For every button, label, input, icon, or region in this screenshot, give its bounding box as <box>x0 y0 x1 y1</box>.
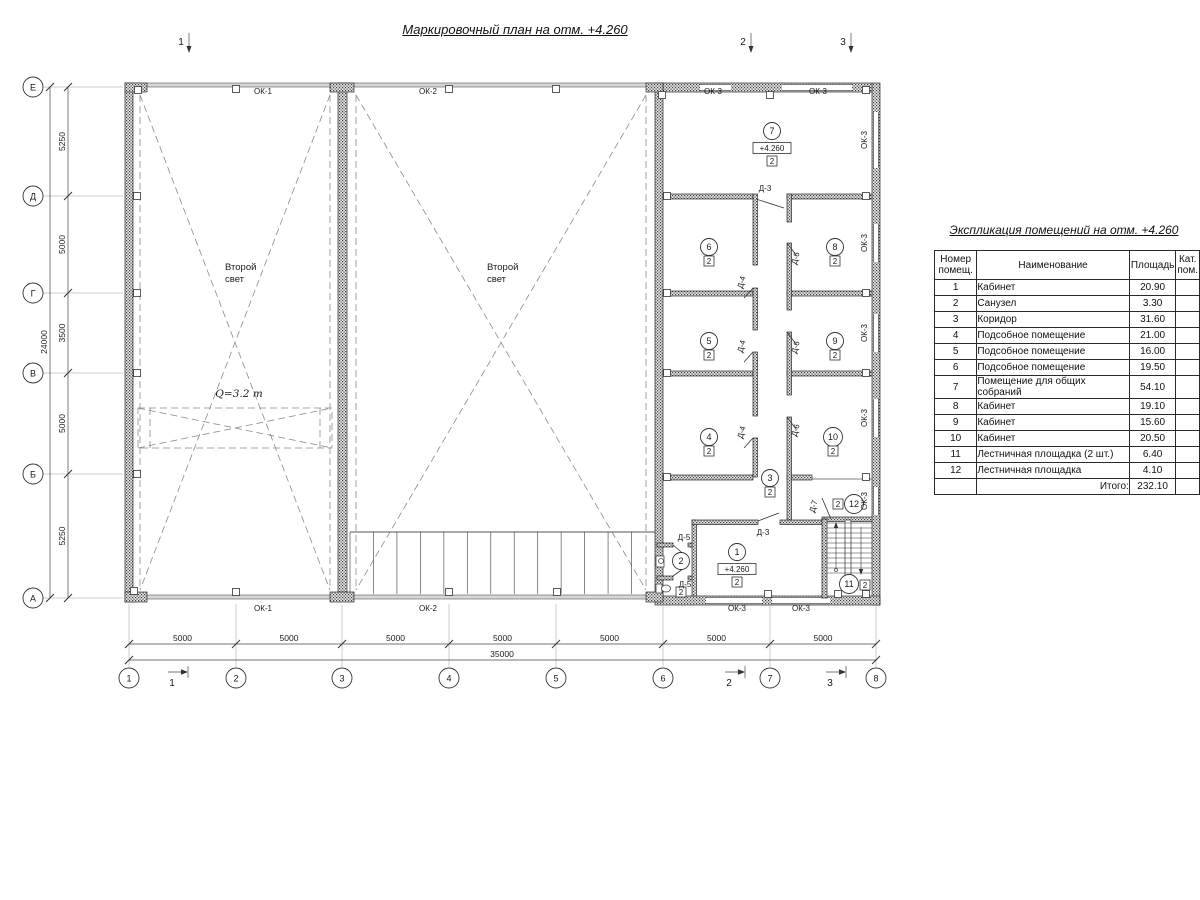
window-label: ОК-3 <box>860 491 869 510</box>
door-label: Д-3 <box>759 184 772 193</box>
section-mark-label: 3 <box>840 37 846 48</box>
cell-room-category <box>1176 328 1200 344</box>
column-marker <box>765 591 772 598</box>
cell-total-value: 232.10 <box>1129 479 1176 495</box>
cell-room-name: Лестничная площадка <box>977 463 1129 479</box>
column-marker <box>233 589 240 596</box>
window-label: ОК-3 <box>860 408 869 427</box>
axis-label: Д <box>30 192 36 202</box>
axis-label: Е <box>30 83 36 93</box>
table-row: 11Лестничная площадка (2 шт.)6.40 <box>935 447 1200 463</box>
room-number: 5 <box>706 336 711 346</box>
cell-room-category <box>1176 376 1200 399</box>
axis-label: 2 <box>233 674 238 684</box>
dimension-total: 24000 <box>39 330 49 354</box>
table-row: 6Подсобное помещение19.50 <box>935 360 1200 376</box>
cell-room-number: 11 <box>935 447 977 463</box>
dimension: 5000 <box>814 633 833 643</box>
col-header-name: Наименование <box>977 251 1129 280</box>
bracing-and-crane <box>138 95 655 594</box>
column-marker <box>446 86 453 93</box>
room-number: 4 <box>706 432 711 442</box>
section-arrow-icon <box>749 46 754 53</box>
column-marker <box>131 588 138 595</box>
cell-room-number: 3 <box>935 312 977 328</box>
table-row: 9Кабинет15.60 <box>935 415 1200 431</box>
cell-room-area: 15.60 <box>1129 415 1176 431</box>
room-number: 8 <box>832 242 837 252</box>
category-label: 2 <box>768 488 773 497</box>
column-marker <box>863 290 870 297</box>
column-marker <box>134 193 141 200</box>
cell-room-name: Подсобное помещение <box>977 328 1129 344</box>
axis-label: 3 <box>339 674 344 684</box>
dimension-total: 35000 <box>490 649 514 659</box>
room-number: 10 <box>828 432 838 442</box>
cell-room-category <box>1176 296 1200 312</box>
cell-room-area: 21.00 <box>1129 328 1176 344</box>
cell-room-number: 9 <box>935 415 977 431</box>
window-label: ОК-3 <box>860 323 869 342</box>
cell-room-category <box>1176 447 1200 463</box>
crane-capacity-label: Q=3.2 т <box>215 388 262 400</box>
cell-room-category <box>1176 280 1200 296</box>
door-label: Д-7 <box>808 499 820 514</box>
cell-room-area: 3.30 <box>1129 296 1176 312</box>
column-marker <box>863 193 870 200</box>
column-marker <box>664 474 671 481</box>
category-label: 2 <box>735 578 740 587</box>
room-number: 7 <box>769 126 774 136</box>
category-label: 2 <box>833 257 838 266</box>
category-label: 2 <box>833 351 838 360</box>
column-marker <box>553 86 560 93</box>
axis-label: 5 <box>553 674 558 684</box>
category-label: 2 <box>836 500 841 509</box>
section-mark-label: 2 <box>740 37 746 48</box>
axis-label: Б <box>30 470 36 480</box>
axis-label: 8 <box>873 674 878 684</box>
dimension: 5000 <box>707 633 726 643</box>
room-number: 11 <box>844 579 853 589</box>
axis-label: В <box>30 369 36 379</box>
elevation-label: +4.260 <box>725 565 750 574</box>
cell-room-name: Кабинет <box>977 280 1129 296</box>
door-label: Д-6 <box>790 423 802 438</box>
table-row: 3Коридор31.60 <box>935 312 1200 328</box>
axis-label: 7 <box>767 674 772 684</box>
door-label: Д-3 <box>757 528 770 537</box>
cell-room-category <box>1176 344 1200 360</box>
cell-room-number: 8 <box>935 399 977 415</box>
second-light-label: свет <box>487 274 507 285</box>
col-header-cat: Кат. пом. <box>1176 251 1200 280</box>
cell-room-name: Кабинет <box>977 431 1129 447</box>
cell-room-number: 4 <box>935 328 977 344</box>
column-marker <box>863 87 870 94</box>
cell-room-category <box>1176 312 1200 328</box>
window-label: ОК-3 <box>728 604 747 613</box>
window-label: ОК-1 <box>254 87 273 96</box>
table-row: 8Кабинет19.10 <box>935 399 1200 415</box>
category-label: 2 <box>707 351 712 360</box>
axis-label: А <box>30 594 36 604</box>
section-arrow-icon <box>187 46 192 53</box>
cell-room-number: 1 <box>935 280 977 296</box>
table-row: 4Подсобное помещение21.00 <box>935 328 1200 344</box>
cell-room-number: 2 <box>935 296 977 312</box>
column-marker <box>659 92 666 99</box>
cell-room-category <box>1176 431 1200 447</box>
column-marker <box>767 92 774 99</box>
window-label: ОК-3 <box>860 130 869 149</box>
table-row: 5Подсобное помещение16.00 <box>935 344 1200 360</box>
cell-room-name: Кабинет <box>977 415 1129 431</box>
room-number: 9 <box>832 336 837 346</box>
dimension: 3500 <box>57 323 67 342</box>
section-arrow-icon <box>849 46 854 53</box>
cell-room-number: 6 <box>935 360 977 376</box>
cell-total-label: Итого: <box>977 479 1129 495</box>
table-row: 2Санузел3.30 <box>935 296 1200 312</box>
category-label: 2 <box>770 157 775 166</box>
door-label: Д-4 <box>736 425 748 440</box>
cell-room-area: 20.90 <box>1129 280 1176 296</box>
dimension: 5000 <box>57 235 67 254</box>
category-label: 2 <box>679 588 684 597</box>
door-label: Д-5 <box>678 533 691 542</box>
dimension: 5000 <box>173 633 192 643</box>
window-label: ОК-3 <box>792 604 811 613</box>
col-header-num: Номер помещ. <box>935 251 977 280</box>
column-marker <box>446 589 453 596</box>
explication-table: Номер помещ. Наименование Площадь Кат. п… <box>934 250 1200 495</box>
section-arrow-icon <box>181 669 188 674</box>
cell-room-name: Подсобное помещение <box>977 344 1129 360</box>
column-marker <box>835 591 842 598</box>
cell-room-category <box>1176 463 1200 479</box>
column-marker <box>863 370 870 377</box>
cell-room-name: Кабинет <box>977 399 1129 415</box>
cell-room-area: 31.60 <box>1129 312 1176 328</box>
category-label: 2 <box>831 447 836 456</box>
dimension: 5000 <box>280 633 299 643</box>
column-marker <box>664 290 671 297</box>
door-label: Д-4 <box>736 339 748 354</box>
section-mark-label: 1 <box>178 37 184 48</box>
room-number: 1 <box>734 547 739 557</box>
column-marker <box>135 87 142 94</box>
room-number: 2 <box>678 556 683 566</box>
table-row: 10Кабинет20.50 <box>935 431 1200 447</box>
cell-room-area: 19.50 <box>1129 360 1176 376</box>
axis-label: 1 <box>126 674 131 684</box>
window-label: ОК-1 <box>254 604 273 613</box>
table-header-row: Номер помещ. Наименование Площадь Кат. п… <box>935 251 1200 280</box>
drawing-sheet: Маркировочный план на отм. +4.260 Экспли… <box>0 0 1200 900</box>
cell-room-category <box>1176 399 1200 415</box>
cell-room-area: 6.40 <box>1129 447 1176 463</box>
crane-outline <box>138 408 332 448</box>
staircase <box>827 520 872 577</box>
column-marker <box>554 589 561 596</box>
dimension: 5000 <box>493 633 512 643</box>
axis-label: Г <box>31 289 36 299</box>
elevation-label: +4.260 <box>760 144 785 153</box>
window-label: ОК-2 <box>419 604 438 613</box>
column-marker <box>134 370 141 377</box>
cell-room-number: 12 <box>935 463 977 479</box>
cell-room-category <box>1176 360 1200 376</box>
window-label: ОК-3 <box>809 87 828 96</box>
column-marker <box>664 370 671 377</box>
cell-empty <box>1176 479 1200 495</box>
cell-room-number: 7 <box>935 376 977 399</box>
dimension: 5000 <box>57 414 67 433</box>
cell-empty <box>935 479 977 495</box>
cell-room-category <box>1176 415 1200 431</box>
table-row: 12Лестничная площадка4.10 <box>935 463 1200 479</box>
column-marker <box>664 193 671 200</box>
sink-bowl-icon <box>659 559 664 564</box>
door-label: Д-4 <box>736 275 748 290</box>
cell-room-name: Подсобное помещение <box>977 360 1129 376</box>
section-arrow-icon <box>738 669 745 674</box>
cell-room-name: Лестничная площадка (2 шт.) <box>977 447 1129 463</box>
cell-room-area: 20.50 <box>1129 431 1176 447</box>
table-row: 1Кабинет20.90 <box>935 280 1200 296</box>
cell-room-name: Санузел <box>977 296 1129 312</box>
category-label: 2 <box>707 257 712 266</box>
door-label: Д-5 <box>679 580 692 589</box>
cell-room-area: 19.10 <box>1129 399 1176 415</box>
room-number: 3 <box>767 473 772 483</box>
room-number: 6 <box>706 242 711 252</box>
section-mark-label: 2 <box>726 678 732 689</box>
loading-platform <box>350 532 655 594</box>
door-leaves <box>673 199 831 576</box>
section-mark-label: 3 <box>827 678 833 689</box>
column-marker <box>233 86 240 93</box>
section-mark-label: 1 <box>169 678 175 689</box>
section-arrow-icon <box>839 669 846 674</box>
dimension: 5250 <box>57 526 67 545</box>
cell-room-area: 4.10 <box>1129 463 1176 479</box>
column-marker <box>134 290 141 297</box>
door-label: Д-6 <box>790 251 802 266</box>
col-header-area: Площадь <box>1129 251 1176 280</box>
second-light-label: Второй <box>487 262 518 273</box>
second-light-label: свет <box>225 274 245 285</box>
cell-room-name: Помещение для общих собраний <box>977 376 1129 399</box>
category-label: 2 <box>707 447 712 456</box>
window-label: ОК-3 <box>704 87 723 96</box>
table-total-row: Итого:232.10 <box>935 479 1200 495</box>
window-label: ОК-3 <box>860 233 869 252</box>
table-row: 7Помещение для общих собраний54.10 <box>935 376 1200 399</box>
second-light-label: Второй <box>225 262 256 273</box>
dimension: 5250 <box>57 132 67 151</box>
explication: Номер помещ. Наименование Площадь Кат. п… <box>934 250 1200 495</box>
column-marker <box>134 471 141 478</box>
toilet-bowl-icon <box>662 585 671 592</box>
axis-label: 4 <box>446 674 451 684</box>
dimension: 5000 <box>600 633 619 643</box>
window-label: ОК-2 <box>419 87 438 96</box>
category-label: 2 <box>863 581 868 590</box>
column-marker <box>863 474 870 481</box>
cell-room-number: 10 <box>935 431 977 447</box>
dimension: 5000 <box>386 633 405 643</box>
axis-label: 6 <box>660 674 665 684</box>
cell-room-area: 54.10 <box>1129 376 1176 399</box>
cell-room-name: Коридор <box>977 312 1129 328</box>
room-number: 12 <box>849 499 859 509</box>
column-marker <box>863 591 870 598</box>
cell-room-number: 5 <box>935 344 977 360</box>
door-label: Д-6 <box>790 340 802 355</box>
cell-room-area: 16.00 <box>1129 344 1176 360</box>
